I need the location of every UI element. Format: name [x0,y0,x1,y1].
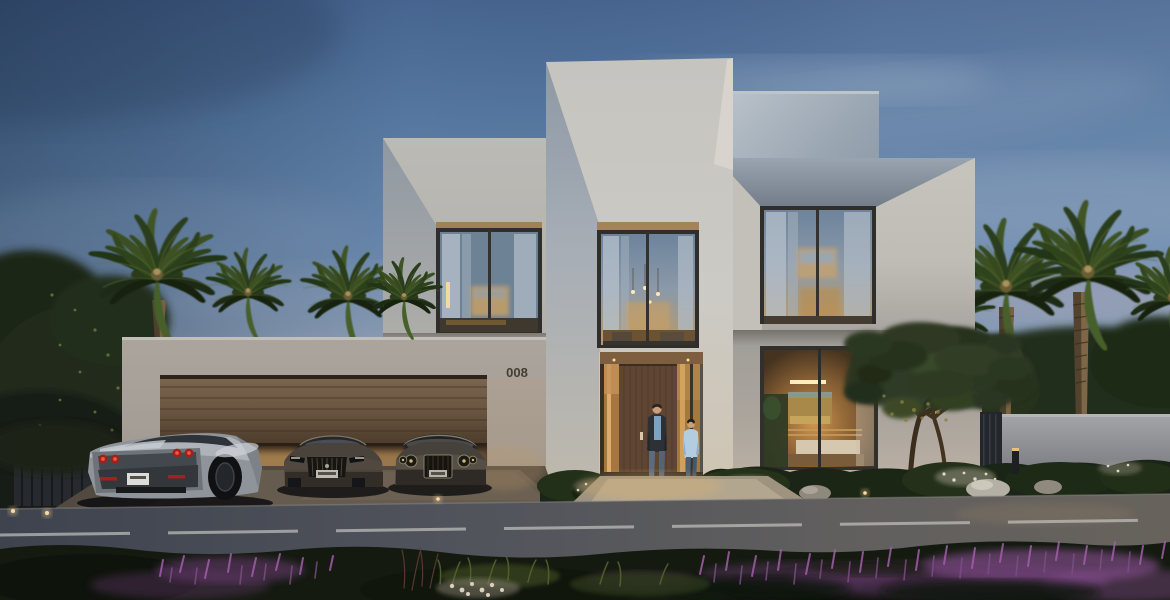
svg-text:008: 008 [506,365,528,380]
